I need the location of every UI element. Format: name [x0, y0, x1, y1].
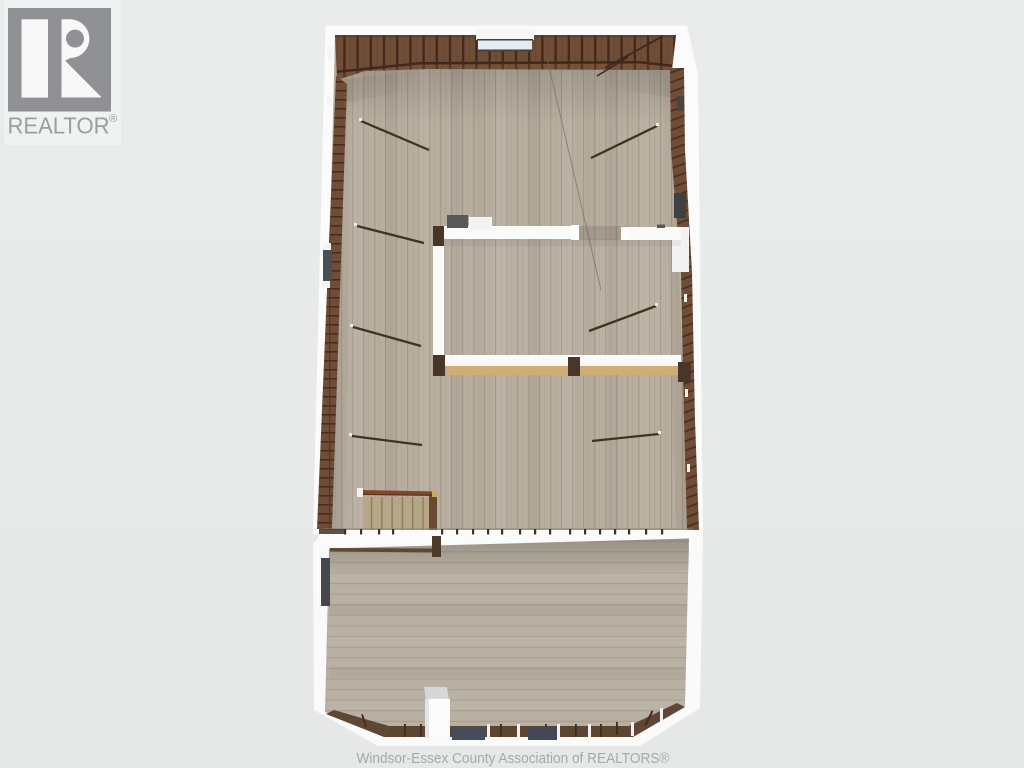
svg-text:Windsor-Essex County Associati: Windsor-Essex County Association of REAL…: [357, 751, 670, 767]
svg-text:REALTOR: REALTOR: [8, 113, 110, 139]
svg-text:®: ®: [109, 113, 117, 125]
